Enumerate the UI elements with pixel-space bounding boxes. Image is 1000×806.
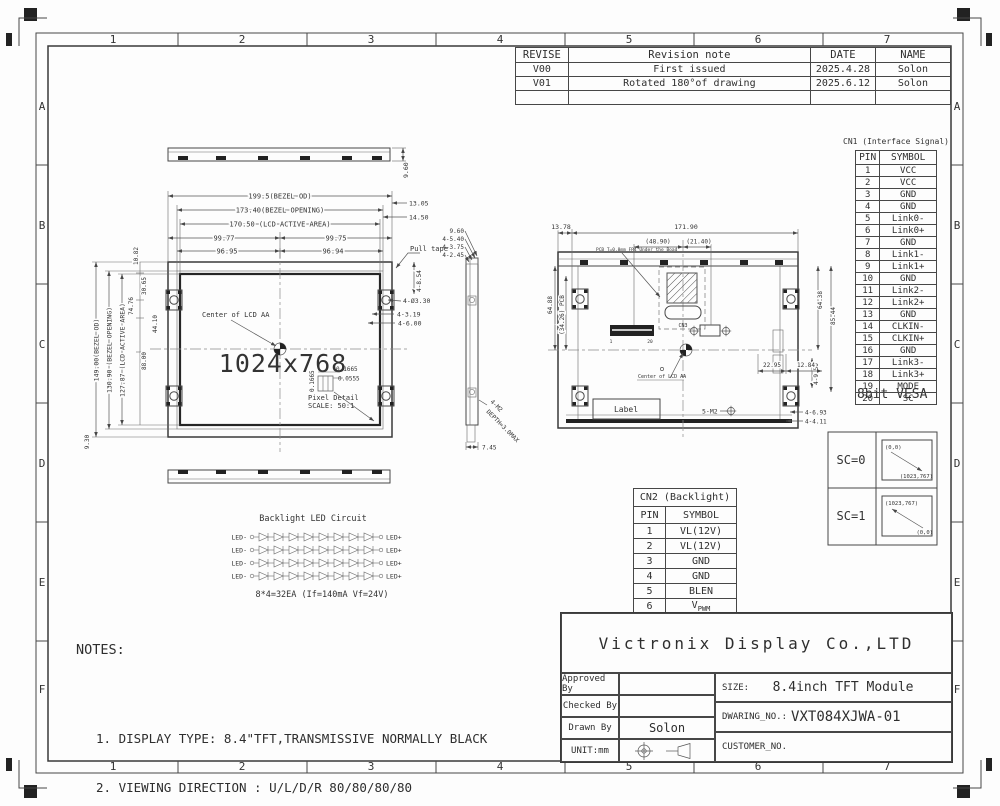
size-value: 8.4inch TFT Module — [773, 680, 928, 695]
cn1-pin: 2 — [856, 177, 880, 189]
dim-ear-600: 4-6.00 — [398, 320, 422, 328]
cn1-pin: 10 — [856, 273, 880, 285]
cn2-pin: 2 — [634, 539, 666, 554]
cn1-symbol: GND — [880, 345, 937, 357]
dim-active-area-w: 170.50 (LCD ACTIVE AREA) — [229, 221, 330, 229]
cn1-symbol: Link3+ — [880, 369, 937, 381]
dim-hole-330: 4-Ø3.30 — [403, 297, 430, 305]
cn1-symbol: CLKIN+ — [880, 333, 937, 345]
dim-rear-8544: 85.44 — [830, 307, 837, 325]
backlight-led-circuit: Backlight LED Circuit LED- LED- LED- LED… — [231, 514, 401, 600]
drawing-no-row: DWARING_NO.: VXT084XJWA-01 — [715, 702, 952, 732]
led-pos-label: LED+ — [386, 534, 402, 542]
rev-col-date: DATE — [811, 48, 876, 63]
checked-by-value — [619, 695, 715, 717]
drawn-by-label: Drawn By — [561, 717, 619, 739]
zone-row: C — [954, 338, 961, 351]
cn1-pin: 20 — [856, 393, 880, 405]
cn2-symbol: VL(12V) — [666, 539, 737, 554]
third-angle-projection-icon — [632, 741, 702, 761]
cn1-table: PIN SYMBOL 1VCC 2VCC 3GND 4GND 5Link0- 6… — [855, 150, 937, 405]
note-item: 1. DISPLAY TYPE: 8.4"TFT,TRANSMISSIVE NO… — [96, 731, 556, 747]
dim-rear-2295: 22.95 — [763, 362, 781, 369]
pixel-dim-sub: 0.0555 — [338, 376, 360, 383]
cn1-pin: 16 — [856, 345, 880, 357]
cn1-symbol: Link2- — [880, 285, 937, 297]
dim-side-540: 4-5.40 — [442, 236, 464, 243]
zone-row: E — [954, 576, 961, 589]
dim-profile-thickness: 9.60 — [402, 162, 410, 178]
cn1-pin: 14 — [856, 321, 880, 333]
cn1-symbol: GND — [880, 273, 937, 285]
rev-col-revise: REVISE — [516, 48, 569, 63]
cn2-symbol: GND — [666, 569, 737, 584]
drawing-no-value: VXT084XJWA-01 — [787, 709, 901, 725]
dim-bezel-od-w: 199.5(BEZEL OD) — [248, 193, 311, 201]
label-box-text: Label — [614, 405, 638, 414]
sc-map: SC=0 SC=1 (0,0) (1023,767) (1023,767) (0… — [828, 432, 937, 545]
led-pos-label: LED+ — [386, 573, 402, 581]
dim-chain-1082: 10.82 — [133, 247, 140, 265]
dim-chain-3065: 30.65 — [141, 277, 148, 295]
cn1-symbol: Link1+ — [880, 261, 937, 273]
zone-row: D — [954, 457, 961, 470]
checked-by-label: Checked By — [561, 695, 619, 717]
zone-col: 4 — [497, 33, 504, 46]
cn2-pin: 1 — [634, 524, 666, 539]
cn1-col-pin: PIN — [856, 151, 880, 165]
cn1-pin: 5 — [856, 213, 880, 225]
cn1-symbol: Link1- — [880, 249, 937, 261]
zone-letters-left: A B C D E F — [39, 100, 46, 696]
cn1-pin: 15 — [856, 333, 880, 345]
cn1-symbol: GND — [880, 237, 937, 249]
notes-heading: NOTES: — [76, 642, 556, 658]
cn2-col-pin: PIN — [634, 507, 666, 524]
led-pos-label: LED+ — [386, 560, 402, 568]
cn1-symbol: Link0- — [880, 213, 937, 225]
led-pos-label: LED+ — [386, 547, 402, 555]
cn2-col-symbol: SYMBOL — [666, 507, 737, 524]
cn1-pin: 1 — [856, 165, 880, 177]
dim-rear-1284: 12.84 — [797, 362, 815, 369]
revision-row-empty — [516, 91, 951, 105]
revision-row: V01 Rotated 180°of drawing 2025.6.12 Sol… — [516, 77, 951, 91]
cn1-symbol: GND — [880, 309, 937, 321]
dim-side-245: 4-2.45 — [442, 252, 464, 259]
dim-edge-1: 13.05 — [409, 200, 429, 208]
dim-chain-4410: 44.10 — [152, 315, 159, 333]
dim-side-745: 7.45 — [482, 445, 497, 452]
rear-center-label: Center of LCD AA — [638, 374, 686, 380]
rev-cell-note: Rotated 180°of drawing — [568, 77, 810, 91]
dim-side-960: 9.60 — [450, 228, 465, 235]
zone-row: B — [39, 219, 46, 232]
zone-row: B — [954, 219, 961, 232]
cn2-title: CN2 (Backlight) — [634, 489, 737, 507]
cn1-pin: 3 — [856, 189, 880, 201]
resolution-label: 1024x768 — [219, 349, 347, 378]
dim-bezel-opening-h: 130.90 (BEZEL OPENING) — [106, 307, 114, 393]
cn2-pin: 3 — [634, 554, 666, 569]
dim-chain-8800: 88.00 — [141, 352, 148, 370]
led-circuit-title: Backlight LED Circuit — [259, 514, 366, 524]
cn1-symbol: SC — [880, 393, 937, 405]
rev-cell-name: Solon — [875, 77, 950, 91]
projection-symbol-cell — [619, 739, 715, 762]
led-circuit-caption: 8*4=32EA (If=140mA Vf=24V) — [255, 590, 388, 600]
zone-col: 2 — [239, 33, 246, 46]
zone-col: 6 — [755, 33, 762, 46]
dim-bottom-930: 9.30 — [84, 434, 91, 449]
rev-col-note: Revision note — [568, 48, 810, 63]
led-neg-label: LED- — [231, 547, 247, 555]
cn1-pin: 18 — [856, 369, 880, 381]
cn1-pin: 17 — [856, 357, 880, 369]
cn2-symbol: VL(12V) — [666, 524, 737, 539]
dim-half2-right: 96.94 — [322, 248, 343, 256]
dim-5m2: 5-M2 — [702, 408, 718, 416]
drawing-no-label: DWARING_NO.: — [716, 712, 787, 722]
cn1-pin: 12 — [856, 297, 880, 309]
led-neg-label: LED- — [231, 534, 247, 542]
engineering-drawing-sheet: 1 2 3 4 5 6 7 1 2 3 4 5 6 7 A B C D E F … — [0, 0, 1000, 806]
dim-side-375: 4-3.75 — [442, 244, 464, 251]
zone-row: C — [39, 338, 46, 351]
size-row: SIZE: 8.4inch TFT Module — [715, 673, 952, 702]
dim-half2-left: 96.95 — [216, 248, 237, 256]
revision-table: REVISE Revision note DATE NAME V00 First… — [515, 47, 951, 105]
rev-cell-date: 2025.4.28 — [811, 63, 876, 77]
zone-col: 5 — [626, 33, 633, 46]
title-block: Victronix Display Co.,LTD Approved By Ch… — [560, 612, 953, 763]
cn1-symbol: VCC — [880, 165, 937, 177]
dim-bezel-opening-w: 173.40(BEZEL OPENING) — [236, 207, 325, 215]
dim-rear-2140: (21.40) — [686, 239, 711, 246]
pixel-detail-title: Pixel Detail — [308, 394, 359, 402]
cn1-title: CN1 (Interface Signal) — [843, 137, 949, 146]
dim-ear-854: 4-8.54 — [416, 270, 423, 292]
rev-col-name: NAME — [875, 48, 950, 63]
rear-view: CN3 1 20 Center of LCD AA Label 5-M2 PCB… — [547, 223, 837, 440]
pixel-dim-h: 0.1665 — [309, 370, 316, 392]
cn2-pin: 5 — [634, 584, 666, 599]
center-of-lcd-label: Center of LCD AA — [202, 311, 270, 319]
zone-col: 3 — [368, 33, 375, 46]
sc0-corner-a: (0,0) — [885, 445, 902, 451]
dim-rear-693: 4-6.93 — [805, 410, 827, 417]
cn1-pin: 7 — [856, 237, 880, 249]
zone-row: D — [39, 457, 46, 470]
cn1-pin: 4 — [856, 201, 880, 213]
cn1-symbol: Link2+ — [880, 297, 937, 309]
zone-row: A — [954, 100, 961, 113]
cn1-pin20-label: 20 — [647, 339, 653, 345]
cn1-symbol: VCC — [880, 177, 937, 189]
zone-letters-right: A B C D E F — [954, 100, 961, 696]
rev-cell-rev: V01 — [516, 77, 569, 91]
rev-cell-name: Solon — [875, 63, 950, 77]
zone-row: A — [39, 100, 46, 113]
dim-rear-17190: 171.90 — [674, 223, 698, 231]
cn1-symbol: CLKIN- — [880, 321, 937, 333]
cn1-pin: 6 — [856, 225, 880, 237]
zone-row: E — [39, 576, 46, 589]
note-item: 2. VIEWING DIRECTION : U/L/D/R 80/80/80/… — [96, 780, 556, 796]
rev-cell-date: 2025.6.12 — [811, 77, 876, 91]
sc1-corner-b: (0,0) — [916, 530, 933, 536]
side-view: 9.60 4-5.40 4-3.75 4-2.45 4-M2 DEPTH=3.0… — [442, 228, 520, 452]
notes-section: NOTES: 1. DISPLAY TYPE: 8.4"TFT,TRANSMIS… — [76, 610, 556, 806]
zone-col: 7 — [884, 33, 891, 46]
cn1-symbol: MODE — [880, 381, 937, 393]
approved-by-label: Approved By — [561, 673, 619, 695]
cn1-symbol: GND — [880, 189, 937, 201]
led-neg-label: LED- — [231, 573, 247, 581]
dim-half-left: 99.77 — [213, 235, 234, 243]
cn1-symbol: Link0+ — [880, 225, 937, 237]
unit-label: UNIT:mm — [561, 739, 619, 762]
customer-no-label: CUSTOMER_NO. — [716, 742, 787, 752]
cn1-pin: 11 — [856, 285, 880, 297]
sc1-label: SC=1 — [837, 509, 866, 523]
dim-chain-7476: 74.76 — [128, 297, 135, 315]
led-neg-label: LED- — [231, 560, 247, 568]
zone-row: F — [39, 683, 46, 696]
drawn-by-value: Solon — [619, 717, 715, 739]
cn1-pin: 9 — [856, 261, 880, 273]
pixel-detail-scale: SCALE: 50:1 — [308, 402, 354, 410]
cn1-pin1-label: 1 — [610, 339, 613, 345]
cn1-symbol: Link3- — [880, 357, 937, 369]
dim-rear-3426: (34.26) PCB — [559, 295, 566, 335]
dim-active-area-h: 127.87 (LCD ACTIVE AREA) — [119, 303, 127, 397]
cn1-symbol: GND — [880, 201, 937, 213]
rear-center-mark — [680, 344, 692, 356]
size-label: SIZE: — [716, 683, 749, 693]
dim-half-right: 99.75 — [325, 235, 346, 243]
sc0-corner-b: (1023,767) — [900, 474, 933, 480]
revision-row: V00 First issued 2025.4.28 Solon — [516, 63, 951, 77]
cn1-pin: 8 — [856, 249, 880, 261]
cn2-symbol: GND — [666, 554, 737, 569]
cn2-table: CN2 (Backlight) PIN SYMBOL 1VL(12V) 2VL(… — [633, 488, 737, 614]
pcb-note: PCB T=0.8mm FR4 Under the Boad — [596, 247, 678, 253]
sc1-corner-a: (1023,767) — [885, 501, 918, 507]
dim-rear-411: 4-4.11 — [805, 419, 827, 426]
customer-no-row: CUSTOMER_NO. — [715, 732, 952, 762]
dim-side-depth: DEPTH=3.0MAX — [485, 408, 521, 444]
cn1-pin: 13 — [856, 309, 880, 321]
cn1-col-symbol: SYMBOL — [880, 151, 937, 165]
front-view: 9.60 1024x768 Center of LCD AA 0.1665 0.… — [84, 148, 448, 483]
sc0-label: SC=0 — [837, 453, 866, 467]
zone-numbers-top: 1 2 3 4 5 6 7 — [110, 33, 891, 46]
dim-rear-4890: (48.90) — [645, 239, 670, 246]
dim-rear-1378: 13.78 — [551, 223, 571, 231]
company-name: Victronix Display Co.,LTD — [561, 613, 952, 673]
dim-ear-319: 4-3.19 — [397, 311, 421, 319]
rev-cell-rev: V00 — [516, 63, 569, 77]
cn3-connector-label: CN3 — [678, 323, 687, 329]
cn1-pin: 19 — [856, 381, 880, 393]
cn2-symbol: BLEN — [666, 584, 737, 599]
rev-cell-note: First issued — [568, 63, 810, 77]
zone-col: 1 — [110, 33, 117, 46]
dim-rear-6488: 64.88 — [547, 296, 554, 314]
dim-bezel-od-h: 149.00(BEZEL OD) — [93, 319, 101, 382]
cn2-pin: 4 — [634, 569, 666, 584]
zone-row: F — [954, 683, 961, 696]
approved-by-value — [619, 673, 715, 695]
dim-rear-6438: 64.38 — [817, 291, 824, 309]
pixel-dim-w: 0.1665 — [336, 366, 358, 373]
dim-edge-2: 14.50 — [409, 214, 429, 222]
